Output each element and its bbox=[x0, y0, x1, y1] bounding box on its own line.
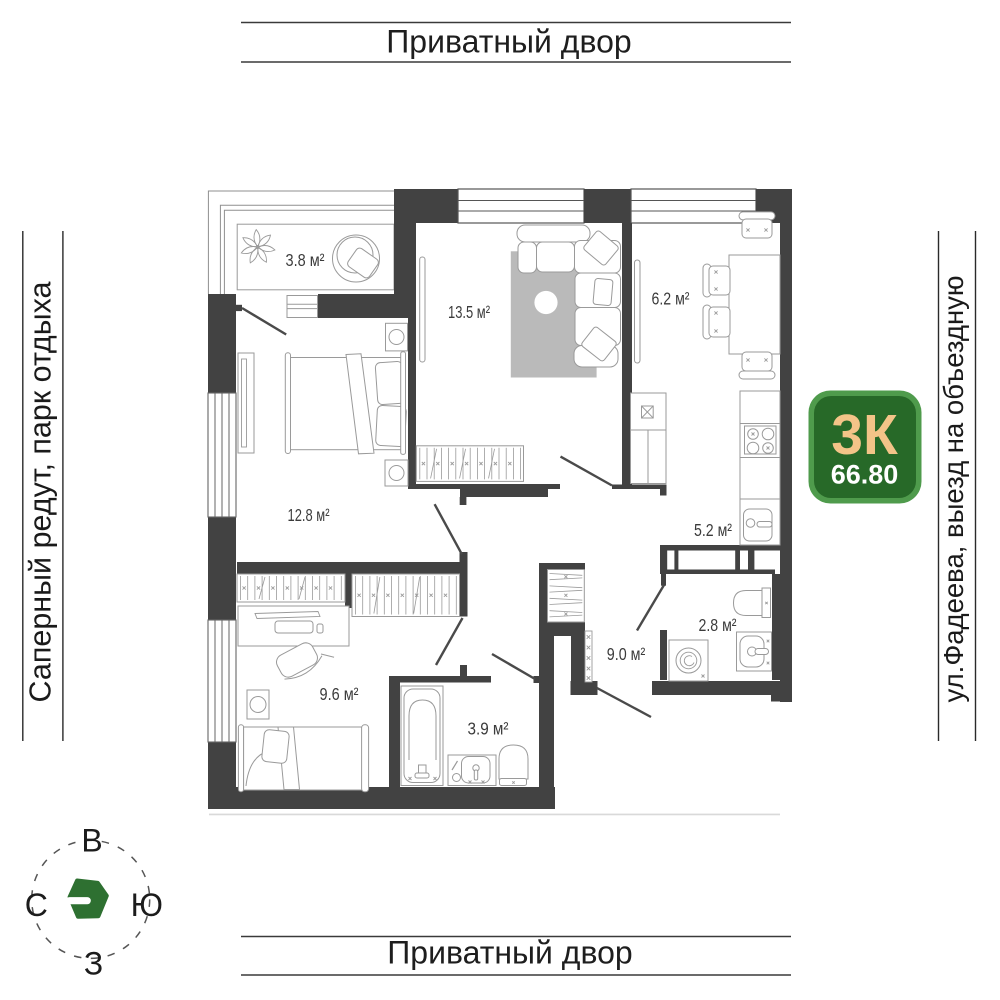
svg-text:ул.Фадеева, выезд на объездную: ул.Фадеева, выезд на объездную bbox=[938, 275, 969, 702]
svg-text:9.0 м²: 9.0 м² bbox=[607, 644, 646, 664]
svg-text:6.2 м²: 6.2 м² bbox=[652, 289, 690, 309]
svg-text:В: В bbox=[81, 823, 102, 859]
svg-text:2.8 м²: 2.8 м² bbox=[699, 615, 737, 635]
svg-text:66.80: 66.80 bbox=[831, 460, 899, 490]
svg-text:3.9 м²: 3.9 м² bbox=[468, 719, 509, 739]
svg-text:Ю: Ю bbox=[131, 887, 163, 923]
svg-text:Приватный двор: Приватный двор bbox=[387, 935, 632, 971]
svg-text:Саперный редут, парк отдыха: Саперный редут, парк отдыха bbox=[24, 281, 58, 702]
svg-text:12.8 м²: 12.8 м² bbox=[288, 505, 330, 525]
svg-text:Приватный двор: Приватный двор bbox=[386, 24, 631, 60]
svg-text:3.8 м²: 3.8 м² bbox=[286, 250, 325, 270]
svg-text:С: С bbox=[25, 887, 48, 923]
svg-text:13.5 м²: 13.5 м² bbox=[448, 302, 490, 322]
svg-text:5.2 м²: 5.2 м² bbox=[694, 520, 732, 540]
svg-text:9.6 м²: 9.6 м² bbox=[320, 684, 359, 704]
svg-text:3К: 3К bbox=[831, 403, 898, 467]
svg-text:З: З bbox=[84, 946, 103, 982]
